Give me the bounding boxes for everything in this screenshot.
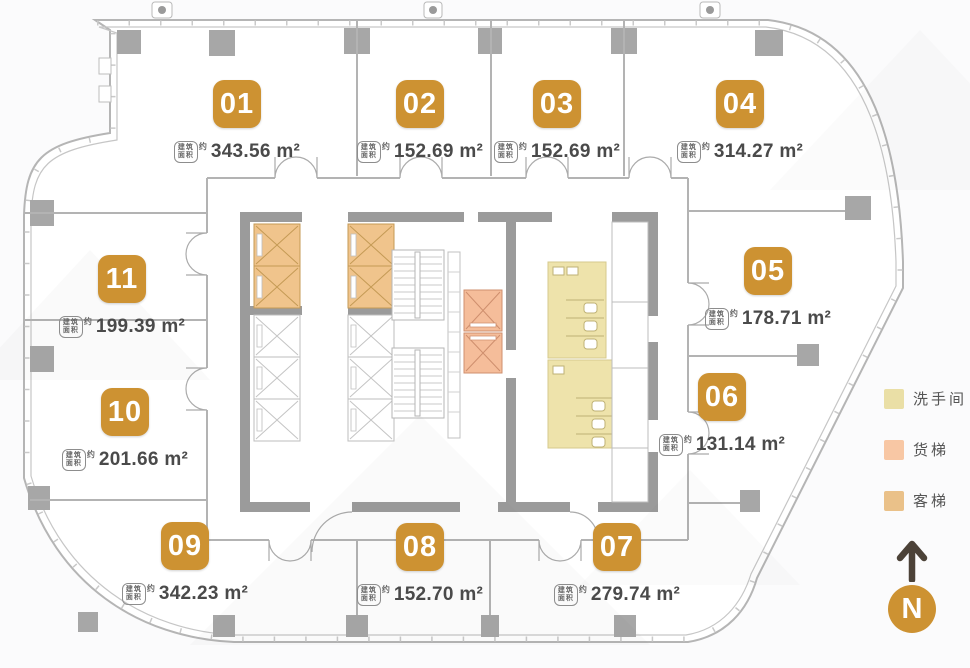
sink-fixture: [553, 366, 564, 374]
legend-swatch-freight-elevator: [884, 440, 904, 460]
column: [845, 196, 871, 220]
unit-label-07: 07 建筑面积 约 279.74 m²: [517, 523, 717, 606]
unit-area: 建筑面积 约 199.39 m²: [59, 316, 185, 338]
legend-item-freight-elevator: 货梯: [884, 439, 967, 460]
duct-shaft: [448, 252, 460, 438]
toilet-fixture: [584, 303, 597, 313]
legend: 洗手间 货梯 客梯: [884, 388, 967, 511]
approx-label: 约: [579, 584, 587, 595]
unit-number-button[interactable]: 11: [98, 255, 146, 303]
area-value: 152.69 m²: [531, 141, 620, 163]
service-rooms: [612, 222, 648, 502]
legend-label: 客梯: [913, 490, 949, 511]
approx-label: 约: [87, 449, 95, 460]
compass: N: [886, 534, 938, 633]
unit-label-09: 09 建筑面积 约 342.23 m²: [85, 522, 285, 605]
unit-label-10: 10 建筑面积 约 201.66 m²: [25, 388, 225, 471]
area-value: 199.39 m²: [96, 316, 185, 338]
area-badge: 建筑面积: [494, 141, 518, 163]
unit-label-08: 08 建筑面积 约 152.70 m²: [320, 523, 520, 606]
toilet-fixture: [592, 401, 605, 411]
column: [209, 30, 235, 56]
column: [78, 612, 98, 632]
approx-label: 约: [684, 434, 692, 445]
unit-number-button[interactable]: 10: [101, 388, 149, 436]
area-value: 279.74 m²: [591, 584, 680, 606]
unit-number-button[interactable]: 01: [213, 80, 261, 128]
approx-label: 约: [147, 583, 155, 594]
unit-number-button[interactable]: 02: [396, 80, 444, 128]
unit-area: 建筑面积 约 342.23 m²: [122, 583, 248, 605]
approx-label: 约: [730, 308, 738, 319]
area-badge: 建筑面积: [705, 308, 729, 330]
unit-number-button[interactable]: 03: [533, 80, 581, 128]
unit-label-03: 03 建筑面积 约 152.69 m²: [457, 80, 657, 163]
unit-number-button[interactable]: 09: [161, 522, 209, 570]
column: [614, 615, 636, 637]
sink-fixture: [553, 267, 564, 275]
area-badge: 建筑面积: [357, 141, 381, 163]
unit-number-button[interactable]: 04: [716, 80, 764, 128]
column: [213, 615, 235, 637]
area-value: 343.56 m²: [211, 141, 300, 163]
area-value: 314.27 m²: [714, 141, 803, 163]
column: [740, 490, 760, 512]
unit-area: 建筑面积 约 178.71 m²: [705, 308, 831, 330]
toilet-fixture: [592, 419, 605, 429]
unit-area: 建筑面积 约 131.14 m²: [659, 434, 785, 456]
area-value: 201.66 m²: [99, 449, 188, 471]
unit-label-06: 06 建筑面积 约 131.14 m²: [622, 373, 822, 456]
legend-label: 货梯: [913, 439, 949, 460]
unit-label-11: 11 建筑面积 约 199.39 m²: [22, 255, 222, 338]
approx-label: 约: [199, 141, 207, 152]
column: [481, 615, 499, 637]
approx-label: 约: [382, 141, 390, 152]
column: [28, 486, 50, 510]
toilet-fixture: [592, 437, 605, 447]
roof-vents: [152, 2, 720, 18]
floor-plan-page: 01 建筑面积 约 343.56 m² 02 建筑面积 约 152.69 m² …: [0, 0, 970, 668]
unit-number-button[interactable]: 08: [396, 523, 444, 571]
legend-label: 洗手间: [913, 388, 967, 409]
facade-louver: [99, 86, 111, 102]
column: [797, 344, 819, 366]
area-badge: 建筑面积: [59, 316, 83, 338]
approx-label: 约: [519, 141, 527, 152]
unit-area: 建筑面积 约 343.56 m²: [174, 141, 300, 163]
unit-label-01: 01 建筑面积 约 343.56 m²: [137, 80, 337, 163]
unit-area: 建筑面积 约 201.66 m²: [62, 449, 188, 471]
legend-item-passenger-elevator: 客梯: [884, 490, 967, 511]
north-badge: N: [888, 585, 936, 633]
area-value: 152.70 m²: [394, 584, 483, 606]
approx-label: 约: [702, 141, 710, 152]
column: [755, 30, 783, 56]
area-badge: 建筑面积: [62, 449, 86, 471]
unit-area: 建筑面积 约 314.27 m²: [677, 141, 803, 163]
freight-elevators: [464, 290, 502, 373]
area-badge: 建筑面积: [554, 584, 578, 606]
north-arrow-icon: [894, 534, 930, 582]
area-badge: 建筑面积: [659, 434, 683, 456]
approx-label: 约: [84, 316, 92, 327]
column: [117, 30, 141, 54]
legend-item-restroom: 洗手间: [884, 388, 967, 409]
unit-label-05: 05 建筑面积 约 178.71 m²: [668, 247, 868, 330]
unit-number-button[interactable]: 06: [698, 373, 746, 421]
legend-swatch-restroom: [884, 389, 904, 409]
area-badge: 建筑面积: [357, 584, 381, 606]
restrooms: [548, 262, 614, 448]
unit-area: 建筑面积 约 152.70 m²: [357, 584, 483, 606]
area-badge: 建筑面积: [122, 583, 146, 605]
area-badge: 建筑面积: [677, 141, 701, 163]
unit-area: 建筑面积 约 152.69 m²: [494, 141, 620, 163]
unit-number-button[interactable]: 07: [593, 523, 641, 571]
legend-swatch-passenger-elevator: [884, 491, 904, 511]
column: [346, 615, 368, 637]
toilet-fixture: [584, 321, 597, 331]
column: [30, 346, 54, 372]
area-value: 131.14 m²: [696, 434, 785, 456]
unit-number-button[interactable]: 05: [744, 247, 792, 295]
area-value: 178.71 m²: [742, 308, 831, 330]
area-badge: 建筑面积: [174, 141, 198, 163]
toilet-fixture: [584, 339, 597, 349]
approx-label: 约: [382, 584, 390, 595]
area-value: 342.23 m²: [159, 583, 248, 605]
unit-area: 建筑面积 约 279.74 m²: [554, 584, 680, 606]
facade-louver: [99, 58, 111, 74]
unit-label-04: 04 建筑面积 约 314.27 m²: [640, 80, 840, 163]
sink-fixture: [567, 267, 578, 275]
